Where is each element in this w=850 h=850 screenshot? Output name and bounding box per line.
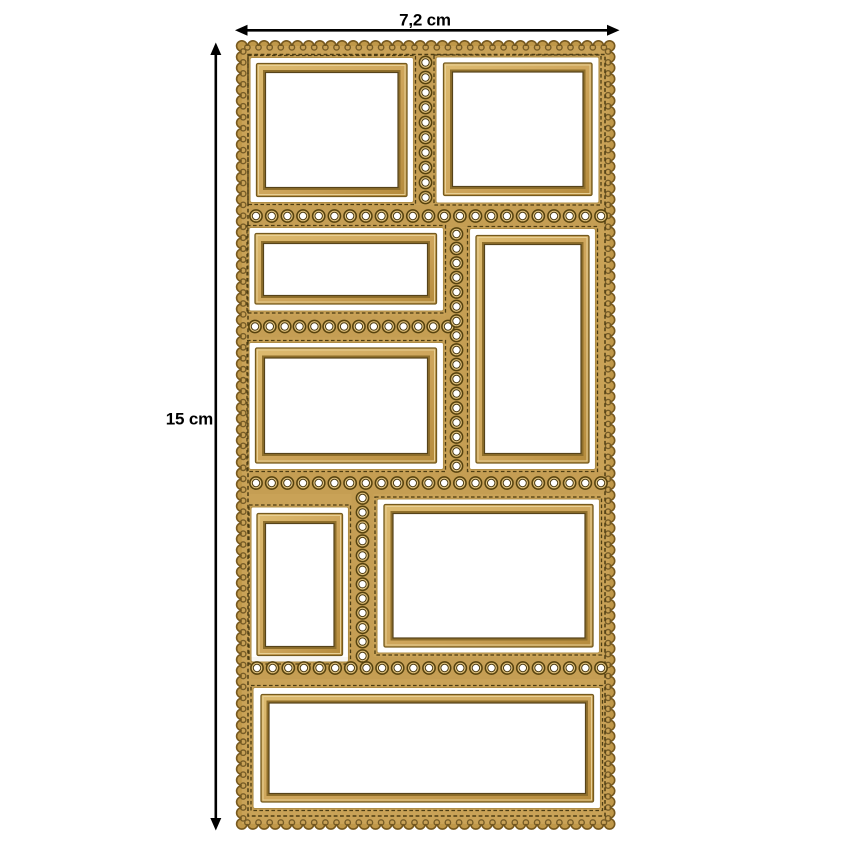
svg-text:15 cm: 15 cm	[166, 410, 213, 429]
svg-text:7,2 cm: 7,2 cm	[399, 11, 451, 30]
